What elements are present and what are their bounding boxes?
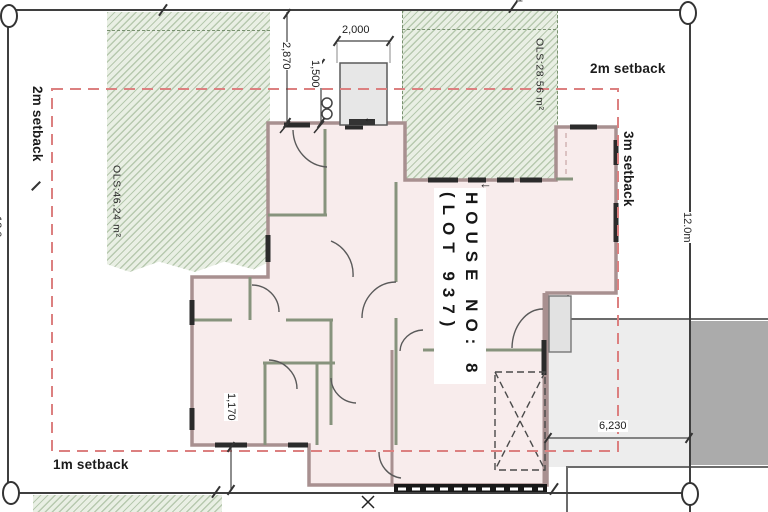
dim-rear-gap: 1,170 — [224, 393, 238, 421]
setback-label-top: 2m setback — [590, 62, 666, 77]
setback-label-left: 2m setback — [29, 86, 44, 162]
house-title: HOUSE NO: 8 (LOT 937) — [434, 188, 486, 384]
open-space-label-left: OLS:46.24 m² — [110, 165, 122, 238]
setback-label-bottom: 1m setback — [53, 458, 129, 473]
entry-arrow-icon: ← — [479, 176, 492, 191]
boundary-length-left: 12.0m — [0, 216, 3, 247]
dim-porch-width: 2,000 — [341, 24, 371, 36]
boundary-peg-label: d — [513, 0, 523, 2]
site-plan-drawing: 2m setback 2m setback 3m setback 1m setb… — [0, 0, 768, 512]
house-footprint — [192, 63, 616, 494]
porch-column-icon — [322, 109, 332, 119]
open-space-label-right: OLS:28.56 m² — [533, 38, 545, 111]
house-title-line2: (LOT 937) — [437, 192, 460, 380]
dim-porch-depth: 1,500 — [308, 60, 322, 88]
setback-label-right: 3m setback — [620, 131, 635, 207]
dim-driveway: 6,230 — [598, 420, 628, 432]
porch-column-icon — [322, 98, 332, 108]
entry-arrow-icon: ← — [363, 110, 376, 125]
survey-cross-icon — [362, 496, 374, 508]
dim-front-setback: 2,870 — [279, 42, 293, 70]
house-title-line1: HOUSE NO: 8 — [460, 192, 483, 380]
side-entry-steps — [549, 296, 571, 352]
boundary-length-right: 12.0m — [681, 212, 693, 243]
